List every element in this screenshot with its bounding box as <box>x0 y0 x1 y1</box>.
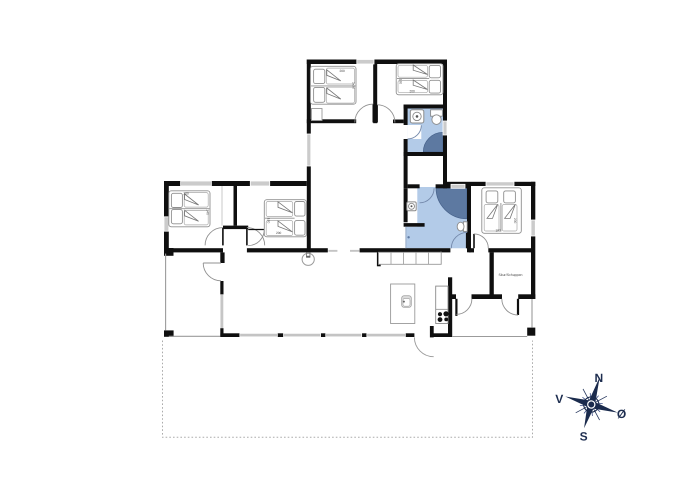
svg-text:S: S <box>580 429 588 443</box>
svg-text:180: 180 <box>495 229 501 233</box>
svg-text:N: N <box>594 371 603 385</box>
svg-text:200: 200 <box>183 192 189 196</box>
svg-text:200: 200 <box>409 89 415 93</box>
svg-text:V: V <box>555 392 563 406</box>
svg-text:200: 200 <box>339 69 345 73</box>
svg-text:180: 180 <box>398 79 402 85</box>
svg-text:180: 180 <box>266 218 270 224</box>
svg-text:Ø: Ø <box>617 407 626 421</box>
svg-text:240: 240 <box>206 210 210 216</box>
svg-text:200: 200 <box>276 231 282 235</box>
svg-text:2x90: 2x90 <box>352 82 356 89</box>
svg-text:200: 200 <box>513 218 517 224</box>
svg-text:Skur/Schuppen: Skur/Schuppen <box>499 273 523 277</box>
